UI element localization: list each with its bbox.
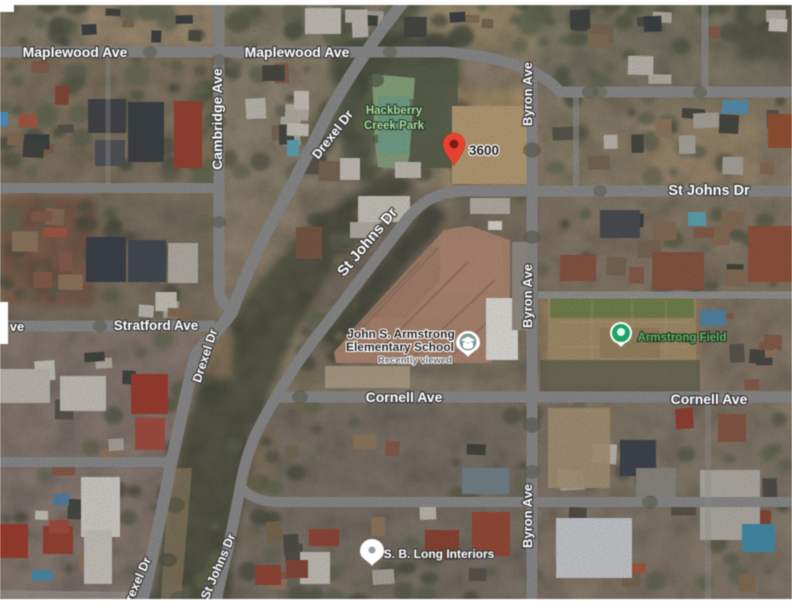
svg-text:3600: 3600 — [469, 143, 499, 158]
svg-text:Recently viewed: Recently viewed — [378, 355, 452, 366]
svg-text:Cambridge Ave: Cambridge Ave — [209, 68, 225, 170]
svg-text:ve: ve — [10, 319, 24, 334]
svg-text:Byron Ave: Byron Ave — [520, 484, 535, 548]
svg-text:Maplewood Ave: Maplewood Ave — [23, 44, 128, 60]
svg-text:S. B. Long Interiors: S. B. Long Interiors — [384, 547, 495, 561]
svg-text:Hackberry: Hackberry — [366, 105, 423, 117]
svg-text:Elementary School: Elementary School — [346, 340, 454, 354]
svg-text:Byron Ave: Byron Ave — [520, 264, 535, 328]
svg-text:Maplewood Ave: Maplewood Ave — [245, 44, 350, 60]
svg-text:Cornell Ave: Cornell Ave — [671, 391, 748, 407]
svg-text:Creek Park: Creek Park — [364, 120, 425, 132]
svg-text:Cornell Ave: Cornell Ave — [366, 389, 443, 405]
svg-text:Armstrong Field: Armstrong Field — [638, 332, 727, 344]
svg-text:St Johns Dr: St Johns Dr — [668, 183, 750, 199]
svg-text:Byron Ave: Byron Ave — [520, 62, 535, 126]
svg-text:Stratford Ave: Stratford Ave — [114, 318, 199, 333]
svg-text:John S. Armstrong: John S. Armstrong — [347, 327, 455, 341]
